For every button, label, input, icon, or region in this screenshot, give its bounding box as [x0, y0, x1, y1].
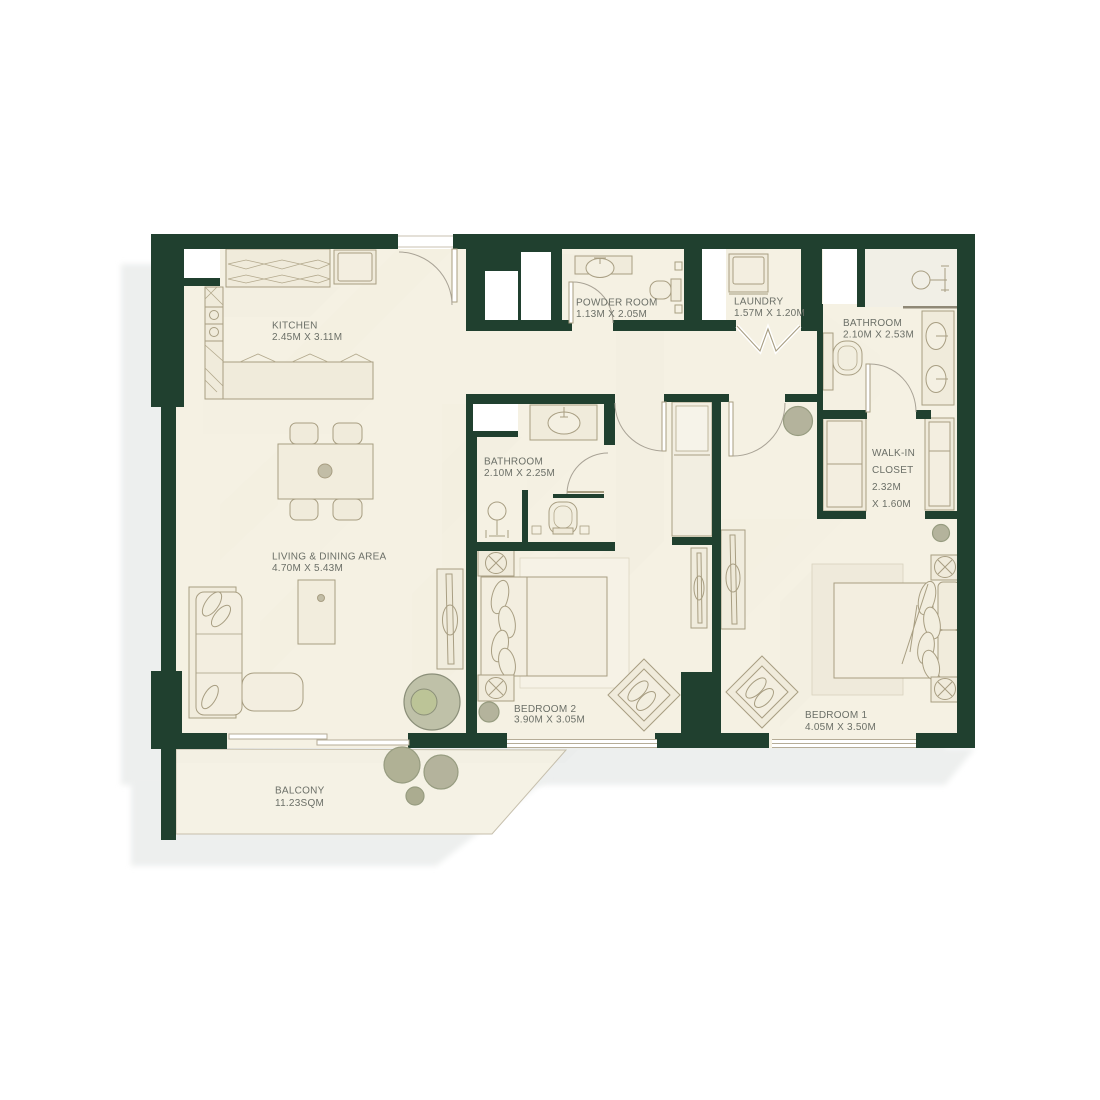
svg-text:POWDER ROOM: POWDER ROOM [576, 298, 658, 309]
svg-text:BATHROOM: BATHROOM [843, 318, 902, 329]
svg-text:1.57M X 1.20M: 1.57M X 1.20M [734, 308, 805, 319]
svg-text:11.23SQM: 11.23SQM [275, 798, 324, 809]
svg-text:2.32M: 2.32M [872, 482, 901, 493]
svg-text:BATHROOM: BATHROOM [484, 457, 543, 468]
svg-text:2.10M X 2.53M: 2.10M X 2.53M [843, 330, 914, 341]
svg-text:BEDROOM 1: BEDROOM 1 [805, 710, 867, 721]
svg-text:KITCHEN: KITCHEN [272, 321, 318, 332]
svg-text:CLOSET: CLOSET [872, 465, 914, 476]
svg-text:X 1.60M: X 1.60M [872, 499, 911, 510]
svg-text:LIVING & DINING AREA: LIVING & DINING AREA [272, 552, 387, 563]
svg-text:4.05M X 3.50M: 4.05M X 3.50M [805, 722, 876, 733]
svg-text:4.70M X 5.43M: 4.70M X 5.43M [272, 563, 343, 574]
svg-text:3.90M X 3.05M: 3.90M X 3.05M [514, 715, 585, 726]
svg-text:BALCONY: BALCONY [275, 786, 325, 797]
svg-text:2.45M X 3.11M: 2.45M X 3.11M [272, 332, 342, 343]
svg-text:LAUNDRY: LAUNDRY [734, 297, 783, 308]
svg-text:2.10M X 2.25M: 2.10M X 2.25M [484, 468, 555, 479]
svg-text:WALK-IN: WALK-IN [872, 448, 915, 459]
svg-text:1.13M X 2.05M: 1.13M X 2.05M [576, 309, 647, 320]
svg-text:BEDROOM 2: BEDROOM 2 [514, 704, 576, 715]
